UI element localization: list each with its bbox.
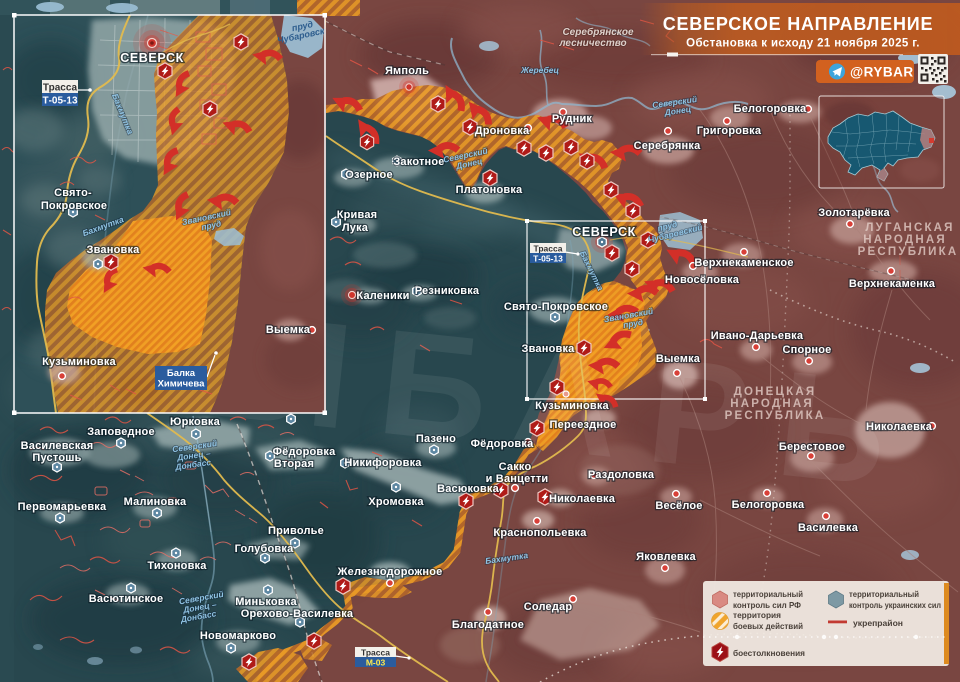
svg-text:Благодатное: Благодатное (452, 619, 524, 631)
svg-text:Раздоловка: Раздоловка (588, 469, 655, 481)
svg-text:Николаевка: Николаевка (866, 421, 933, 433)
svg-text:Озерное: Озерное (345, 169, 393, 181)
svg-text:Малиновка: Малиновка (124, 496, 187, 508)
svg-text:Золотарёвка: Золотарёвка (818, 207, 890, 219)
svg-text:Вторая: Вторая (274, 458, 314, 470)
svg-text:боевых действий: боевых действий (733, 621, 803, 631)
svg-text:контроль украинских сил: контроль украинских сил (849, 600, 941, 610)
svg-text:Соледар: Соледар (524, 601, 573, 613)
svg-text:Кузьминовка: Кузьминовка (535, 400, 609, 412)
svg-text:Т-05-13: Т-05-13 (533, 253, 563, 263)
svg-text:территория: территория (733, 610, 781, 620)
svg-text:СЕВЕРСК: СЕВЕРСК (572, 225, 636, 239)
svg-text:ЛУГАНСКАЯ: ЛУГАНСКАЯ (865, 222, 954, 234)
svg-text:Васютинское: Васютинское (89, 593, 164, 605)
svg-text:Фёдоровка: Фёдоровка (471, 438, 535, 450)
svg-text:Ивано-Дарьевка: Ивано-Дарьевка (711, 330, 804, 342)
svg-text:СЕВЕРСК: СЕВЕРСК (120, 51, 184, 65)
svg-text:Ямполь: Ямполь (385, 65, 429, 77)
svg-text:@RYBAR: @RYBAR (850, 65, 914, 80)
svg-text:Кривая: Кривая (337, 209, 378, 221)
svg-text:Григоровка: Григоровка (697, 125, 762, 137)
svg-text:Юрковка: Юрковка (170, 416, 221, 428)
svg-text:Новосёловка: Новосёловка (665, 274, 740, 286)
svg-text:контроль сил РФ: контроль сил РФ (733, 600, 801, 610)
svg-text:НАРОДНАЯ: НАРОДНАЯ (863, 234, 947, 246)
svg-text:укрепрайон: укрепрайон (853, 618, 903, 628)
svg-text:Звановка: Звановка (87, 244, 141, 256)
svg-text:Дроновка: Дроновка (475, 125, 530, 137)
svg-text:Платоновка: Платоновка (456, 184, 523, 196)
svg-text:Балка: Балка (167, 368, 196, 379)
svg-text:Рудник: Рудник (552, 113, 593, 125)
svg-text:Звановка: Звановка (522, 343, 576, 355)
svg-text:Трасса: Трасса (43, 83, 78, 94)
svg-text:Заповедное: Заповедное (87, 426, 155, 438)
svg-text:Берестовое: Берестовое (779, 441, 845, 453)
svg-text:СЕВЕРСКОЕ НАПРАВЛЕНИЕ: СЕВЕРСКОЕ НАПРАВЛЕНИЕ (663, 14, 934, 34)
svg-text:Выемка: Выемка (656, 353, 701, 365)
svg-text:Весёлое: Весёлое (655, 500, 702, 512)
svg-text:Васюковка: Васюковка (437, 483, 500, 495)
svg-text:лесничество: лесничество (558, 38, 626, 49)
svg-text:боестолкновения: боестолкновения (733, 648, 805, 658)
svg-text:Закотное: Закотное (393, 156, 444, 168)
svg-text:Василевская: Василевская (21, 440, 94, 452)
svg-text:Серебрянка: Серебрянка (634, 140, 701, 152)
svg-text:РЕСПУБЛИКА: РЕСПУБЛИКА (858, 246, 959, 258)
svg-text:Кузьминовка: Кузьминовка (42, 356, 116, 368)
svg-text:Обстановка к исходу 21 ноября: Обстановка к исходу 21 ноября 2025 г. (686, 38, 920, 50)
svg-text:Химичева: Химичева (158, 379, 206, 390)
svg-text:Белогоровка: Белогоровка (732, 499, 805, 511)
svg-text:НАРОДНАЯ: НАРОДНАЯ (730, 398, 814, 410)
svg-text:Василевка: Василевка (798, 522, 859, 534)
svg-text:Краснопольевка: Краснопольевка (493, 527, 587, 539)
svg-text:Жеребец: Жеребец (520, 65, 560, 75)
svg-text:Сакко: Сакко (499, 461, 532, 473)
svg-text:Верхнекаменское: Верхнекаменское (694, 257, 793, 269)
svg-text:Серебрянское: Серебрянское (562, 26, 634, 38)
svg-text:Спорное: Спорное (783, 344, 832, 356)
svg-text:Хромовка: Хромовка (368, 496, 424, 508)
svg-text:Первомарьевка: Первомарьевка (18, 501, 107, 513)
svg-text:территориальный: территориальный (733, 589, 803, 599)
svg-text:Голубовка: Голубовка (235, 543, 294, 555)
svg-text:РЕСПУБЛИКА: РЕСПУБЛИКА (725, 410, 826, 422)
svg-text:Свято-: Свято- (54, 187, 92, 199)
svg-text:Пустошь: Пустошь (32, 452, 81, 464)
svg-text:Фёдоровка: Фёдоровка (273, 446, 337, 458)
svg-text:Переездное: Переездное (550, 419, 617, 431)
svg-text:Лука: Лука (342, 222, 369, 234)
svg-text:Белогоровка: Белогоровка (734, 103, 807, 115)
svg-text:М-03: М-03 (366, 657, 386, 667)
svg-text:Новомарково: Новомарково (200, 630, 276, 642)
svg-text:Резниковка: Резниковка (415, 285, 480, 297)
svg-text:ДОНЕЦКАЯ: ДОНЕЦКАЯ (734, 386, 817, 398)
svg-text:Трасса: Трасса (361, 647, 390, 657)
svg-text:Миньковка: Миньковка (235, 596, 297, 608)
svg-text:Николаевка: Николаевка (549, 493, 616, 505)
svg-text:Выемка: Выемка (266, 324, 311, 336)
svg-text:Железнодорожное: Железнодорожное (337, 566, 443, 578)
svg-text:Приволье: Приволье (268, 525, 324, 537)
svg-text:Орехово-Василевка: Орехово-Василевка (241, 608, 354, 620)
svg-text:Т-05-13: Т-05-13 (42, 96, 77, 107)
svg-text:Покровское: Покровское (41, 200, 107, 212)
svg-text:Никифоровка: Никифоровка (344, 457, 422, 469)
svg-text:Тихоновка: Тихоновка (147, 560, 207, 572)
svg-text:Каленики: Каленики (356, 290, 409, 302)
svg-text:Яковлевка: Яковлевка (636, 551, 696, 563)
svg-text:Пазено: Пазено (416, 433, 456, 445)
svg-text:Верхнекаменка: Верхнекаменка (849, 278, 936, 290)
svg-text:Свято-Покровское: Свято-Покровское (504, 301, 608, 313)
svg-text:Трасса: Трасса (533, 243, 562, 253)
svg-text:территориальный: территориальный (849, 589, 919, 599)
